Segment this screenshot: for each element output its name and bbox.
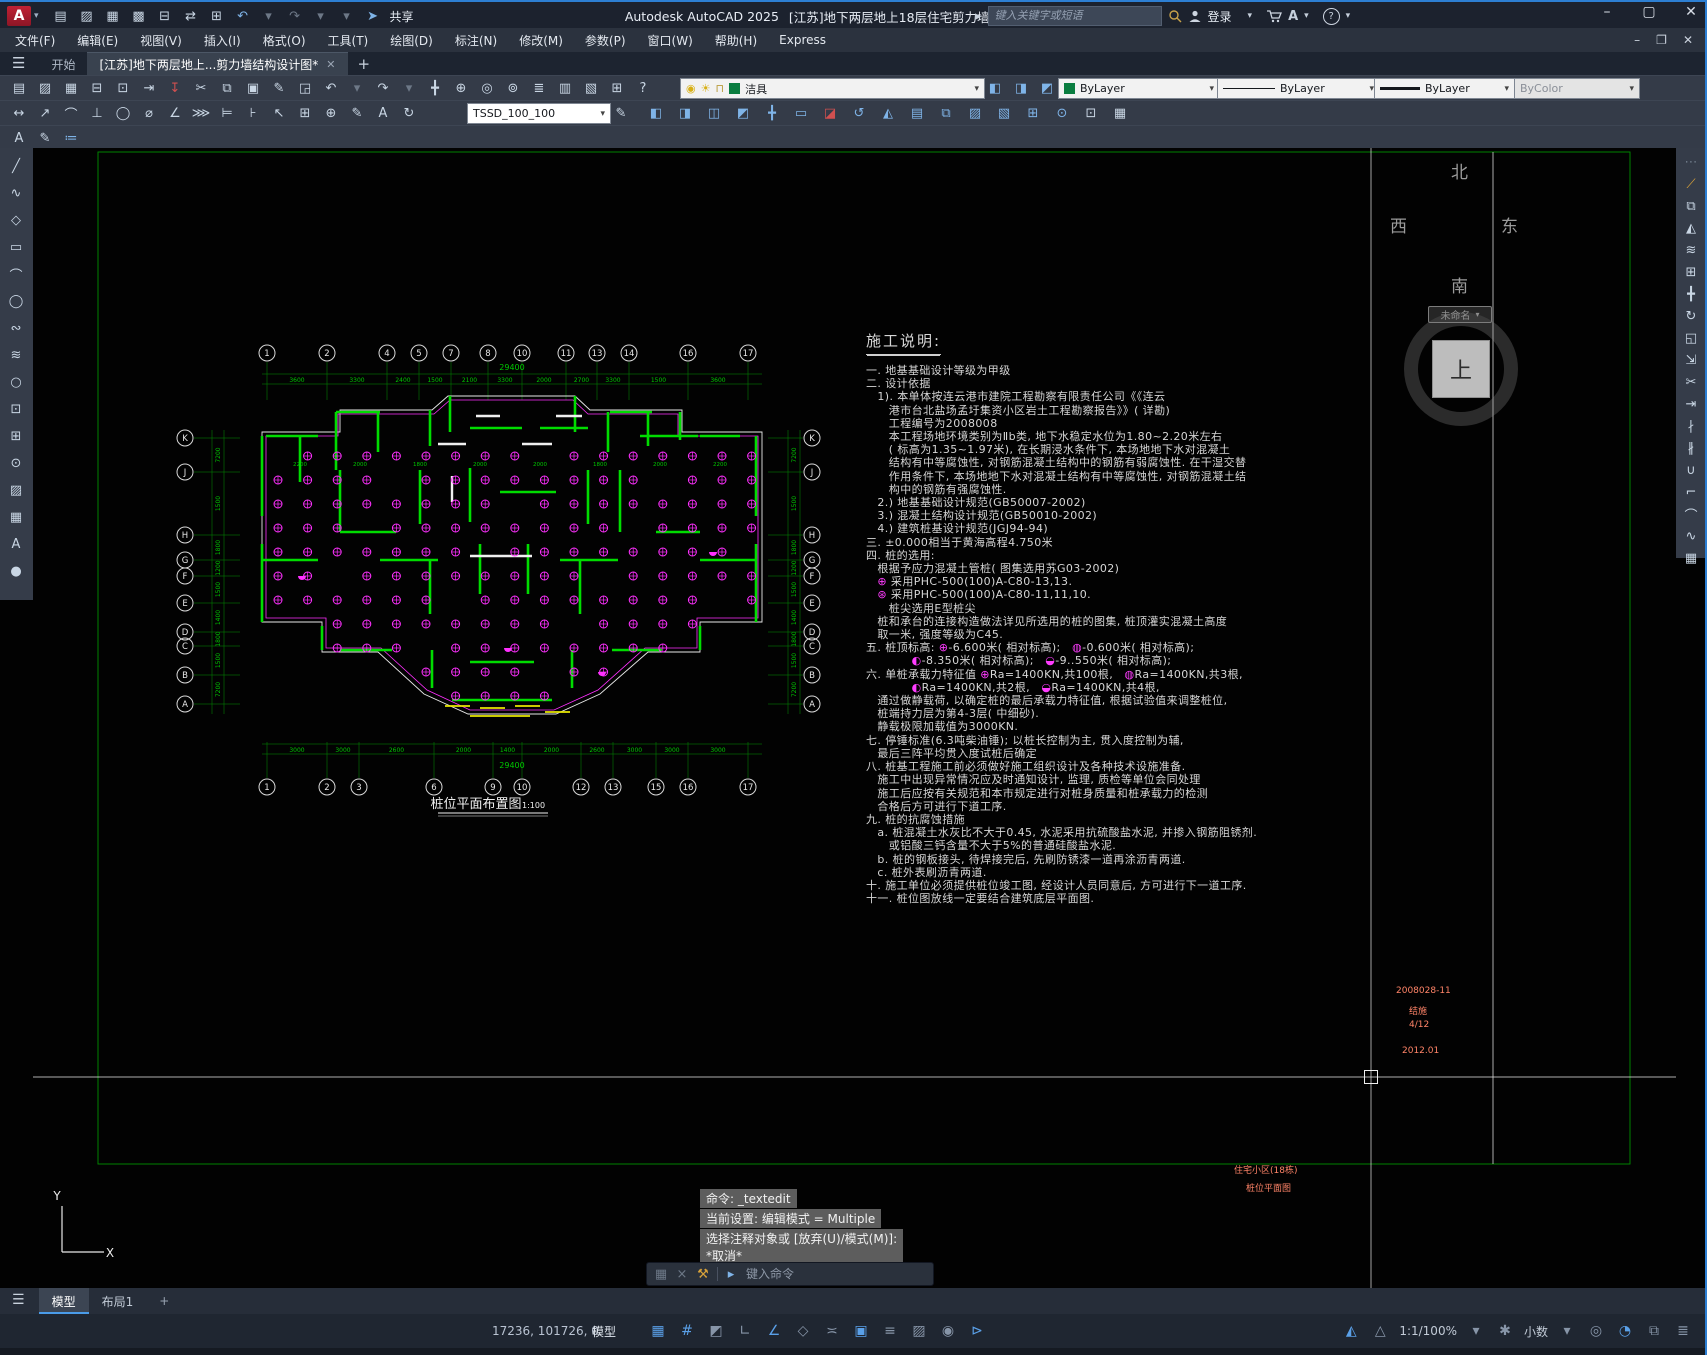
layer-name: 洁具	[745, 81, 767, 97]
svg-text:桩位平面布置图: 桩位平面布置图	[430, 797, 521, 812]
svg-text:1800: 1800	[593, 462, 607, 468]
svg-text:D: D	[809, 628, 816, 638]
note-line: 1). 本单体按连云港市建院工程勘察有限责任公司《《连云	[866, 390, 1326, 403]
tab-model[interactable]: 模型	[39, 1288, 89, 1314]
quick-access-toolbar: ▤▨▦▩⊟⇄⊞↶▾↷▾▾➤	[50, 6, 384, 27]
note-line: 施工中出现异常情况应及时通知设计, 监理, 质检等单位会同处理	[866, 773, 1326, 786]
save-as-icon[interactable]: ▩	[128, 6, 150, 27]
svg-text:C: C	[809, 642, 815, 652]
svg-text:3300: 3300	[605, 377, 620, 384]
lineweight-control[interactable]: ByLayer ▾	[1374, 78, 1515, 99]
tssd-insert-icon[interactable]: ⊡	[1080, 103, 1102, 124]
svg-text:13: 13	[608, 783, 619, 793]
autocad-window: A ▾ ▤▨▦▩⊟⇄⊞↶▾↷▾▾➤ 共享 Autodesk AutoCAD 20…	[0, 0, 1707, 1355]
tssd-pile-icon[interactable]: ⊙	[1051, 103, 1073, 124]
svg-text:1800: 1800	[413, 462, 427, 468]
note-line: ( 标高为1.35~1.97米), 在长期浸水条件下, 本场地地下水对混凝土	[866, 443, 1326, 456]
plot-icon[interactable]: ⊟	[86, 78, 108, 99]
add-layout-button[interactable]: +	[146, 1288, 182, 1314]
menu-6[interactable]: 工具(T)	[317, 28, 380, 52]
dim-update-icon[interactable]: ↻	[398, 103, 420, 124]
copy-clip-icon[interactable]: ⧉	[216, 78, 238, 99]
ortho-mode-icon[interactable]: ∟	[735, 1323, 755, 1339]
svg-text:3000: 3000	[664, 747, 679, 754]
tssd-rotate-icon[interactable]: ↺	[848, 103, 870, 124]
tssd-copy-icon[interactable]: ⧉	[935, 103, 957, 124]
note-line: 通过做静载荷, 以确定桩的最后承载力特征值, 根据试验值来调整桩位,	[866, 694, 1326, 707]
text-style-icon[interactable]: A	[8, 128, 30, 149]
svg-text:F: F	[810, 572, 815, 582]
layer-isolate-icon[interactable]: ◧	[984, 78, 1006, 99]
plot-preview-icon[interactable]: ⊡	[112, 78, 134, 99]
layer-control[interactable]: ◉ ☀ ⊓ 洁具 ▾	[680, 78, 985, 99]
svg-text:G: G	[182, 556, 189, 566]
units-dropdown-icon[interactable]: ▾	[1557, 1323, 1577, 1339]
svg-text:E: E	[182, 599, 187, 609]
menu-bar: 文件(F)编辑(E)视图(V)插入(I)格式(O)工具(T)绘图(D)标注(N)…	[0, 28, 1707, 52]
scale-dropdown-icon[interactable]: ▾	[1466, 1323, 1486, 1339]
transparency-icon[interactable]: ▨	[909, 1323, 929, 1339]
svg-text:1400: 1400	[215, 610, 222, 625]
svg-text:29400: 29400	[499, 761, 524, 770]
command-input[interactable]	[744, 1266, 898, 1282]
svg-text:1500: 1500	[791, 653, 798, 668]
match-properties-icon[interactable]: ✎	[268, 78, 290, 99]
dim-linear-icon[interactable]: ↔	[8, 103, 30, 124]
menu-13[interactable]: Express	[768, 28, 837, 52]
selection-cycling-icon[interactable]: ◉	[938, 1323, 958, 1339]
dim-edit-icon[interactable]: ✎	[346, 103, 368, 124]
svg-text:Y: Y	[52, 1189, 61, 1203]
svg-text:K: K	[182, 434, 188, 444]
command-tools-icon[interactable]: ⚒	[696, 1264, 710, 1285]
dim-baseline-icon[interactable]: ⊨	[216, 103, 238, 124]
help-icon[interactable]: ?	[632, 78, 654, 99]
svg-text:1500: 1500	[427, 377, 442, 384]
open-icon[interactable]: ▨	[34, 78, 56, 99]
help-icon[interactable]: ?	[1323, 8, 1340, 25]
autodesk-app-icon[interactable]: A	[1288, 9, 1298, 24]
undo-icon[interactable]: ↶	[320, 78, 342, 99]
svg-text:X: X	[106, 1246, 114, 1260]
note-line: ⊕ 采用PHC-500(100)A-C80-13,13.	[866, 575, 1326, 588]
save-icon[interactable]: ▦	[60, 78, 82, 99]
drawing-canvas[interactable]: ╱∿◇▭⌒◯∾≋○⊡⊞⊙▨▦A● ⋯⟋⧉◭≋⊞╋↻◱⇲✂⇥∤∦∪⌐⌒∿▦ YX1…	[0, 148, 1707, 1288]
transfer-icon[interactable]: ⇄	[180, 6, 202, 27]
dimstyle-control[interactable]: TSSD_100_100 ▾	[467, 103, 611, 124]
note-line: 二. 设计依据	[866, 377, 1326, 390]
dimstyle-dropdown-icon[interactable]: ▾	[600, 109, 605, 119]
svg-text:1500: 1500	[651, 377, 666, 384]
properties-palette-icon[interactable]: ▧	[580, 78, 602, 99]
dim-arc-icon[interactable]: ⌒	[60, 103, 82, 124]
svg-text:6: 6	[431, 783, 436, 793]
plotstyle-dropdown-icon: ▾	[1629, 84, 1634, 94]
command-history-line-1: 命令: _textedit	[700, 1189, 797, 1208]
svg-text:15: 15	[651, 783, 662, 793]
svg-text:F: F	[183, 572, 188, 582]
save-icon[interactable]: ▦	[102, 6, 124, 27]
dynamic-input-icon[interactable]: ⊳	[967, 1323, 987, 1339]
construction-notes: 施工说明: 一. 地基基础设计等级为甲级二. 设计依据 1). 本单体按连云港市…	[866, 330, 1326, 905]
titleblock-project-name: 住宅小区(18栋)	[1234, 1163, 1297, 1176]
dim-quick-icon[interactable]: ⋙	[190, 103, 212, 124]
search-icon[interactable]	[1168, 9, 1182, 23]
svg-text:2200: 2200	[713, 462, 727, 468]
note-line: 构中的钢筋有强腐蚀性.	[866, 483, 1326, 496]
viewcube-west-label[interactable]: 西	[1390, 212, 1407, 237]
dim-leader-icon[interactable]: ↖	[268, 103, 290, 124]
tssd-wall-icon[interactable]: ◧	[645, 103, 667, 124]
note-line: 五. 桩顶标高: ⊕-6.600米( 相对标高); ◍-0.600米( 相对标高…	[866, 641, 1326, 654]
menu-2[interactable]: 编辑(E)	[66, 28, 129, 52]
svg-text:7200: 7200	[791, 682, 798, 697]
model-space-toggle[interactable]: 模型	[592, 1323, 616, 1340]
command-recent-icon[interactable]: ▸	[725, 1264, 737, 1285]
undo-icon[interactable]: ↶	[232, 6, 254, 27]
note-line: 桩和承台的连接构造做法详见所选用的桩的图集, 桩顶灌实混凝土高度	[866, 615, 1326, 628]
tssd-slab-icon[interactable]: ◩	[732, 103, 754, 124]
tssd-fill-icon[interactable]: ▨	[964, 103, 986, 124]
qat-customize-icon[interactable]: ▾	[336, 6, 358, 27]
svg-text:17: 17	[743, 783, 754, 793]
viewcube-south-label[interactable]: 南	[1451, 272, 1468, 297]
user-icon[interactable]	[1188, 9, 1202, 23]
menu-11[interactable]: 窗口(W)	[637, 28, 704, 52]
tab-document[interactable]: [江苏]地下两层地上...剪力墙结构设计图* ✕	[87, 52, 347, 75]
infer-constraints-icon[interactable]: ◩	[706, 1323, 726, 1339]
svg-text:3000: 3000	[335, 747, 350, 754]
undo-dropdown-icon[interactable]: ▾	[258, 6, 280, 27]
tab-start[interactable]: 开始	[39, 53, 87, 75]
note-line: ⊛ 采用PHC-500(100)A-C80-11,11,10.	[866, 588, 1326, 601]
menu-12[interactable]: 帮助(H)	[704, 28, 768, 52]
note-line: 工程编号为2008008	[866, 417, 1326, 430]
layer-on-icon[interactable]: ◉	[686, 82, 696, 95]
svg-text:2100: 2100	[462, 377, 477, 384]
svg-text:12: 12	[576, 783, 587, 793]
print-icon[interactable]: ⊞	[206, 6, 228, 27]
menu-3[interactable]: 视图(V)	[129, 28, 193, 52]
svg-text:11: 11	[561, 349, 572, 359]
svg-text:2000: 2000	[473, 462, 487, 468]
color-dropdown-icon[interactable]: ▾	[1209, 84, 1214, 94]
search-expand-icon[interactable]: ▸	[975, 9, 982, 24]
window-bottom-edge	[0, 1348, 1707, 1355]
clean-screen-icon[interactable]: ⧉	[1644, 1323, 1664, 1339]
command-dock-grip-icon[interactable]: ▦	[654, 1264, 668, 1285]
paste-clip-icon[interactable]: ▣	[242, 78, 264, 99]
svg-text:2000: 2000	[533, 462, 547, 468]
annotation-visibility-icon[interactable]: ◭	[1341, 1323, 1361, 1339]
layer-dropdown-icon[interactable]: ▾	[974, 84, 979, 94]
dim-radius-icon[interactable]: ◯	[112, 103, 134, 124]
tssd-column-icon[interactable]: ◨	[674, 103, 696, 124]
tab-layout1[interactable]: 布局1	[89, 1288, 147, 1314]
note-line: 取一米, 强度等级为C45.	[866, 628, 1326, 641]
svg-text:1200: 1200	[791, 560, 798, 575]
redo-icon[interactable]: ↷	[284, 6, 306, 27]
svg-text:2000: 2000	[653, 462, 667, 468]
dimstyle-value: TSSD_100_100	[473, 107, 555, 120]
tssd-stair-icon[interactable]: ▤	[906, 103, 928, 124]
search-input[interactable]	[988, 6, 1162, 26]
linetype-sample	[1223, 88, 1275, 89]
dim-angular-icon[interactable]: ∠	[164, 103, 186, 124]
note-line: b. 桩的钢板接头, 待焊接完后, 先刷防锈漆一道再涂沥青两道.	[866, 853, 1326, 866]
menu-4[interactable]: 插入(I)	[193, 28, 252, 52]
tssd-check-icon[interactable]: ▦	[1109, 103, 1131, 124]
qnew-icon[interactable]: ▤	[8, 78, 30, 99]
menu-9[interactable]: 修改(M)	[508, 28, 574, 52]
svg-text:1500: 1500	[791, 582, 798, 597]
note-line: 施工后应按有关规范和本市规定进行对桩身质量和桩承载力的检测	[866, 787, 1326, 800]
units[interactable]: 小数	[1524, 1323, 1548, 1340]
lineweight-value: ByLayer	[1425, 82, 1470, 95]
dim-ordinate-icon[interactable]: ⊥	[86, 103, 108, 124]
menu-7[interactable]: 绘图(D)	[379, 28, 444, 52]
plot-icon[interactable]: ⊟	[154, 6, 176, 27]
svg-text:3600: 3600	[710, 377, 725, 384]
close-button[interactable]: ✕	[1681, 4, 1701, 20]
svg-text:1800: 1800	[215, 540, 222, 555]
svg-text:G: G	[809, 556, 816, 566]
menu-8[interactable]: 标注(N)	[444, 28, 508, 52]
svg-text:B: B	[182, 671, 188, 681]
signin-caret-icon[interactable]: ▾	[1248, 11, 1253, 21]
doc-close-button[interactable]: ✕	[1683, 33, 1693, 47]
lineweight-sample	[1380, 87, 1420, 90]
note-line: 十. 施工单位必须提供桩位竣工图, 经设计人员同意后, 方可进行下一道工序.	[866, 879, 1326, 892]
edit-references-icon[interactable]: ◲	[294, 78, 316, 99]
dim-center-mark-icon[interactable]: ⊕	[320, 103, 342, 124]
doc-minimize-button[interactable]: –	[1634, 33, 1640, 47]
viewcube-east-label[interactable]: 东	[1501, 212, 1518, 237]
svg-text:3600: 3600	[289, 377, 304, 384]
svg-text:8: 8	[485, 349, 490, 359]
svg-text:3300: 3300	[497, 377, 512, 384]
dim-aligned-icon[interactable]: ↗	[34, 103, 56, 124]
publish-icon[interactable]: ⇥	[138, 78, 160, 99]
layer-states-icon[interactable]: ▥	[554, 78, 576, 99]
note-line: 3.) 混凝土结构设计规范(GB50010-2002)	[866, 509, 1326, 522]
isometric-drafting-icon[interactable]: ◇	[793, 1323, 813, 1339]
note-line: 港市台北盐场孟圩集资小区岩土工程勘察报告》》( 详勘)	[866, 404, 1326, 417]
svg-text:7200: 7200	[215, 682, 222, 697]
status-bar: 17236, 101726, 0 模型 ▦#◩∟∠◇≍▣≡▨◉⊳ ◭△1:1/1…	[0, 1314, 1707, 1348]
color-control[interactable]: ByLayer ▾	[1058, 78, 1220, 99]
svg-text:2000: 2000	[536, 377, 551, 384]
svg-text:A: A	[182, 700, 188, 710]
svg-text:B: B	[809, 671, 815, 681]
named-view-caret-icon: ▾	[1475, 310, 1479, 319]
note-line: 九. 桩的抗腐蚀措施	[866, 813, 1326, 826]
dim-style-edit-icon[interactable]: ✎	[610, 103, 632, 124]
svg-text:1800: 1800	[791, 540, 798, 555]
svg-text:1: 1	[264, 349, 269, 359]
apps-caret-icon[interactable]: ▾	[1304, 11, 1309, 21]
svg-text:14: 14	[624, 349, 635, 359]
svg-text:J: J	[810, 468, 814, 478]
doc-restore-button[interactable]: ❐	[1656, 33, 1667, 47]
app-logo-icon[interactable]: A	[7, 6, 31, 26]
annotation-scale[interactable]: 1:1/100%	[1399, 1324, 1457, 1338]
export-dwf-icon[interactable]: ↧	[164, 78, 186, 99]
svg-text:2000: 2000	[353, 462, 367, 468]
object-snap-icon[interactable]: ▣	[851, 1323, 871, 1339]
svg-text:1400: 1400	[791, 610, 798, 625]
svg-text:2: 2	[324, 783, 329, 793]
note-line: a. 桩混凝土水灰比不大于0.45, 水泥采用抗硫酸盐水泥, 并掺入钢筋阻锈剂.	[866, 826, 1326, 839]
command-history-line-3: 选择注释对象或 [放弃(U)/模式(M)]: *取消*	[700, 1229, 903, 1265]
svg-text:29400: 29400	[499, 363, 524, 372]
file-tab-menu-icon[interactable]: ☰	[12, 54, 25, 72]
signin-button[interactable]: 登录	[1208, 8, 1232, 25]
redo-dropdown-icon[interactable]: ▾	[398, 78, 420, 99]
layer-unisolate-icon[interactable]: ◨	[1010, 78, 1032, 99]
svg-text:7200: 7200	[791, 447, 798, 462]
note-line: 2.) 地基基础设计规范(GB50007-2002)	[866, 496, 1326, 509]
minimize-button[interactable]: –	[1597, 4, 1617, 20]
text-check-icon[interactable]: ≔	[60, 128, 82, 149]
viewcube-top-face[interactable]: 上	[1432, 340, 1490, 398]
menu-1[interactable]: 文件(F)	[4, 28, 66, 52]
titleblock-date: 2012.01	[1402, 1046, 1439, 1056]
lineweight-dropdown-icon[interactable]: ▾	[1504, 84, 1509, 94]
undo-dropdown-icon[interactable]: ▾	[346, 78, 368, 99]
title-bar: A ▾ ▤▨▦▩⊟⇄⊞↶▾↷▾▾➤ 共享 Autodesk AutoCAD 20…	[0, 0, 1707, 30]
svg-text:2000: 2000	[456, 747, 471, 754]
svg-text:1500: 1500	[791, 496, 798, 511]
note-line: 合格后方可进行下道工序.	[866, 800, 1326, 813]
snap-mode-icon[interactable]: #	[677, 1323, 697, 1339]
share-icon[interactable]: ➤	[362, 6, 384, 27]
svg-text:7: 7	[448, 349, 453, 359]
svg-text:3000: 3000	[289, 747, 304, 754]
note-line: 最后三阵平均贯入度试桩后确定	[866, 747, 1326, 760]
dim-diameter-icon[interactable]: ⌀	[138, 103, 160, 124]
dimension-toolbar: ↔↗⌒⊥◯⌀∠⋙⊨⊦↖⊞⊕✎A↻ TSSD_100_100 ▾ ✎ ◧◨◫◩╋▭…	[0, 100, 1707, 126]
cut-clip-icon[interactable]: ✂	[190, 78, 212, 99]
svg-text:16: 16	[683, 349, 694, 359]
note-line: 三. ±0.000相当于黄海高程4.750米	[866, 536, 1326, 549]
redo-icon[interactable]: ↷	[372, 78, 394, 99]
command-prompt: 选择注释对象或 [放弃(U)/模式(M)]:	[706, 1230, 897, 1247]
workspace-switching-icon[interactable]: ✱	[1495, 1323, 1515, 1339]
note-line: 一. 地基基础设计等级为甲级	[866, 364, 1326, 377]
svg-text:C: C	[182, 642, 188, 652]
tssd-mirror-icon[interactable]: ◭	[877, 103, 899, 124]
qnew-icon[interactable]: ▤	[50, 6, 72, 27]
svg-text:H: H	[809, 531, 815, 541]
pan-realtime-icon[interactable]: ╋	[424, 78, 446, 99]
text-edit-icon[interactable]: ✎	[34, 128, 56, 149]
object-isolate-icon[interactable]: ◎	[1586, 1323, 1606, 1339]
tssd-door-icon[interactable]: ▭	[790, 103, 812, 124]
svg-text:2400: 2400	[395, 377, 410, 384]
new-drawing-tab-button[interactable]: +	[358, 55, 371, 73]
tssd-beam-icon[interactable]: ◫	[703, 103, 725, 124]
current-color-chip	[1064, 83, 1075, 94]
help-caret-icon[interactable]: ▾	[1346, 11, 1351, 21]
tssd-erase-icon[interactable]: ◪	[819, 103, 841, 124]
app-menu-caret-icon[interactable]: ▾	[34, 11, 39, 21]
object-snap-tracking-icon[interactable]: ≍	[822, 1323, 842, 1339]
redo-dropdown-icon[interactable]: ▾	[310, 6, 332, 27]
svg-text:A: A	[809, 700, 815, 710]
command-line-dock[interactable]: ▦ × ⚒ ▸	[646, 1262, 934, 1286]
standard-toolbar: ▤▨▦⊟⊡⇥↧✂⧉▣✎◲↶▾↷▾╋⊕◎⊚≣▥▧⊞? ◉ ☀ ⊓ 洁具 ▾ ◧◨◩…	[0, 75, 1707, 101]
maximize-button[interactable]: ▢	[1639, 4, 1659, 20]
lineweight-display-icon[interactable]: ≡	[880, 1323, 900, 1339]
svg-text:H: H	[182, 531, 188, 541]
zoom-previous-icon[interactable]: ⊚	[502, 78, 524, 99]
note-line: 桩端持力层为第4-3层( 中细砂).	[866, 707, 1326, 720]
zoom-realtime-icon[interactable]: ⊕	[450, 78, 472, 99]
tab-close-icon[interactable]: ✕	[326, 58, 335, 71]
svg-text:D: D	[182, 628, 189, 638]
svg-text:17: 17	[743, 349, 754, 359]
layer-freeze-icon[interactable]: ☀	[701, 82, 711, 95]
autoscale-icon[interactable]: △	[1370, 1323, 1390, 1339]
titleblock-sheet-no: 4/12	[1409, 1020, 1429, 1030]
dim-text-edit-icon[interactable]: A	[372, 103, 394, 124]
note-line: 4.) 建筑桩基设计规范(JGJ94-94)	[866, 522, 1326, 535]
layout-tab-bar: ☰ 模型 布局1 +	[0, 1288, 1707, 1314]
named-view-button[interactable]: 未命名▾	[1428, 306, 1492, 323]
note-line: 结构有中等腐蚀性, 对钢筋混凝土结构中的钢筋有弱腐蚀性. 在干湿交替	[866, 456, 1326, 469]
svg-text:1: 1	[264, 783, 269, 793]
note-line: 桩尖选用E型桩尖	[866, 602, 1326, 615]
svg-text:1500: 1500	[215, 653, 222, 668]
layer-lock-icon[interactable]: ⊓	[715, 82, 724, 95]
open-icon[interactable]: ▨	[76, 6, 98, 27]
zoom-window-icon[interactable]: ◎	[476, 78, 498, 99]
svg-text:4: 4	[384, 349, 389, 359]
svg-text:1500: 1500	[215, 582, 222, 597]
svg-text:13: 13	[592, 349, 603, 359]
tssd-grid-icon[interactable]: ⊞	[1022, 103, 1044, 124]
color-value: ByLayer	[1080, 82, 1125, 95]
quickcalc-icon[interactable]: ⊞	[606, 78, 628, 99]
command-close-icon[interactable]: ×	[675, 1264, 689, 1285]
layout-menu-icon[interactable]: ☰	[12, 1292, 25, 1308]
dim-tolerance-icon[interactable]: ⊞	[294, 103, 316, 124]
note-line: ◐Ra=1400KN,共2根, ◒Ra=1400KN,共4根,	[866, 681, 1326, 694]
grid-display-icon[interactable]: ▦	[648, 1323, 668, 1339]
layer-properties-icon[interactable]: ≣	[528, 78, 550, 99]
menu-10[interactable]: 参数(P)	[574, 28, 637, 52]
linetype-control[interactable]: ByLayer ▾	[1217, 78, 1380, 99]
share-button[interactable]: 共享	[390, 8, 414, 25]
graphics-performance-icon[interactable]: ◔	[1615, 1323, 1635, 1339]
svg-text:1800: 1800	[215, 631, 222, 646]
dim-continue-icon[interactable]: ⊦	[242, 103, 264, 124]
polar-tracking-icon[interactable]: ∠	[764, 1323, 784, 1339]
customization-icon[interactable]: ≣	[1673, 1323, 1693, 1339]
menu-5[interactable]: 格式(O)	[252, 28, 317, 52]
viewcube-north-label[interactable]: 北	[1451, 158, 1468, 183]
app-store-cart-icon[interactable]	[1266, 9, 1282, 23]
tssd-hatch-icon[interactable]: ▧	[993, 103, 1015, 124]
svg-text:1800: 1800	[791, 631, 798, 646]
tssd-move-icon[interactable]: ╋	[761, 103, 783, 124]
app-title: Autodesk AutoCAD 2025	[625, 9, 779, 24]
command-history-line-2: 当前设置: 编辑模式 = Multiple	[700, 1209, 881, 1228]
note-line: c. 桩外表刷沥青两道.	[866, 866, 1326, 879]
svg-text:3: 3	[356, 783, 361, 793]
layer-previous-icon[interactable]: ◩	[1036, 78, 1058, 99]
